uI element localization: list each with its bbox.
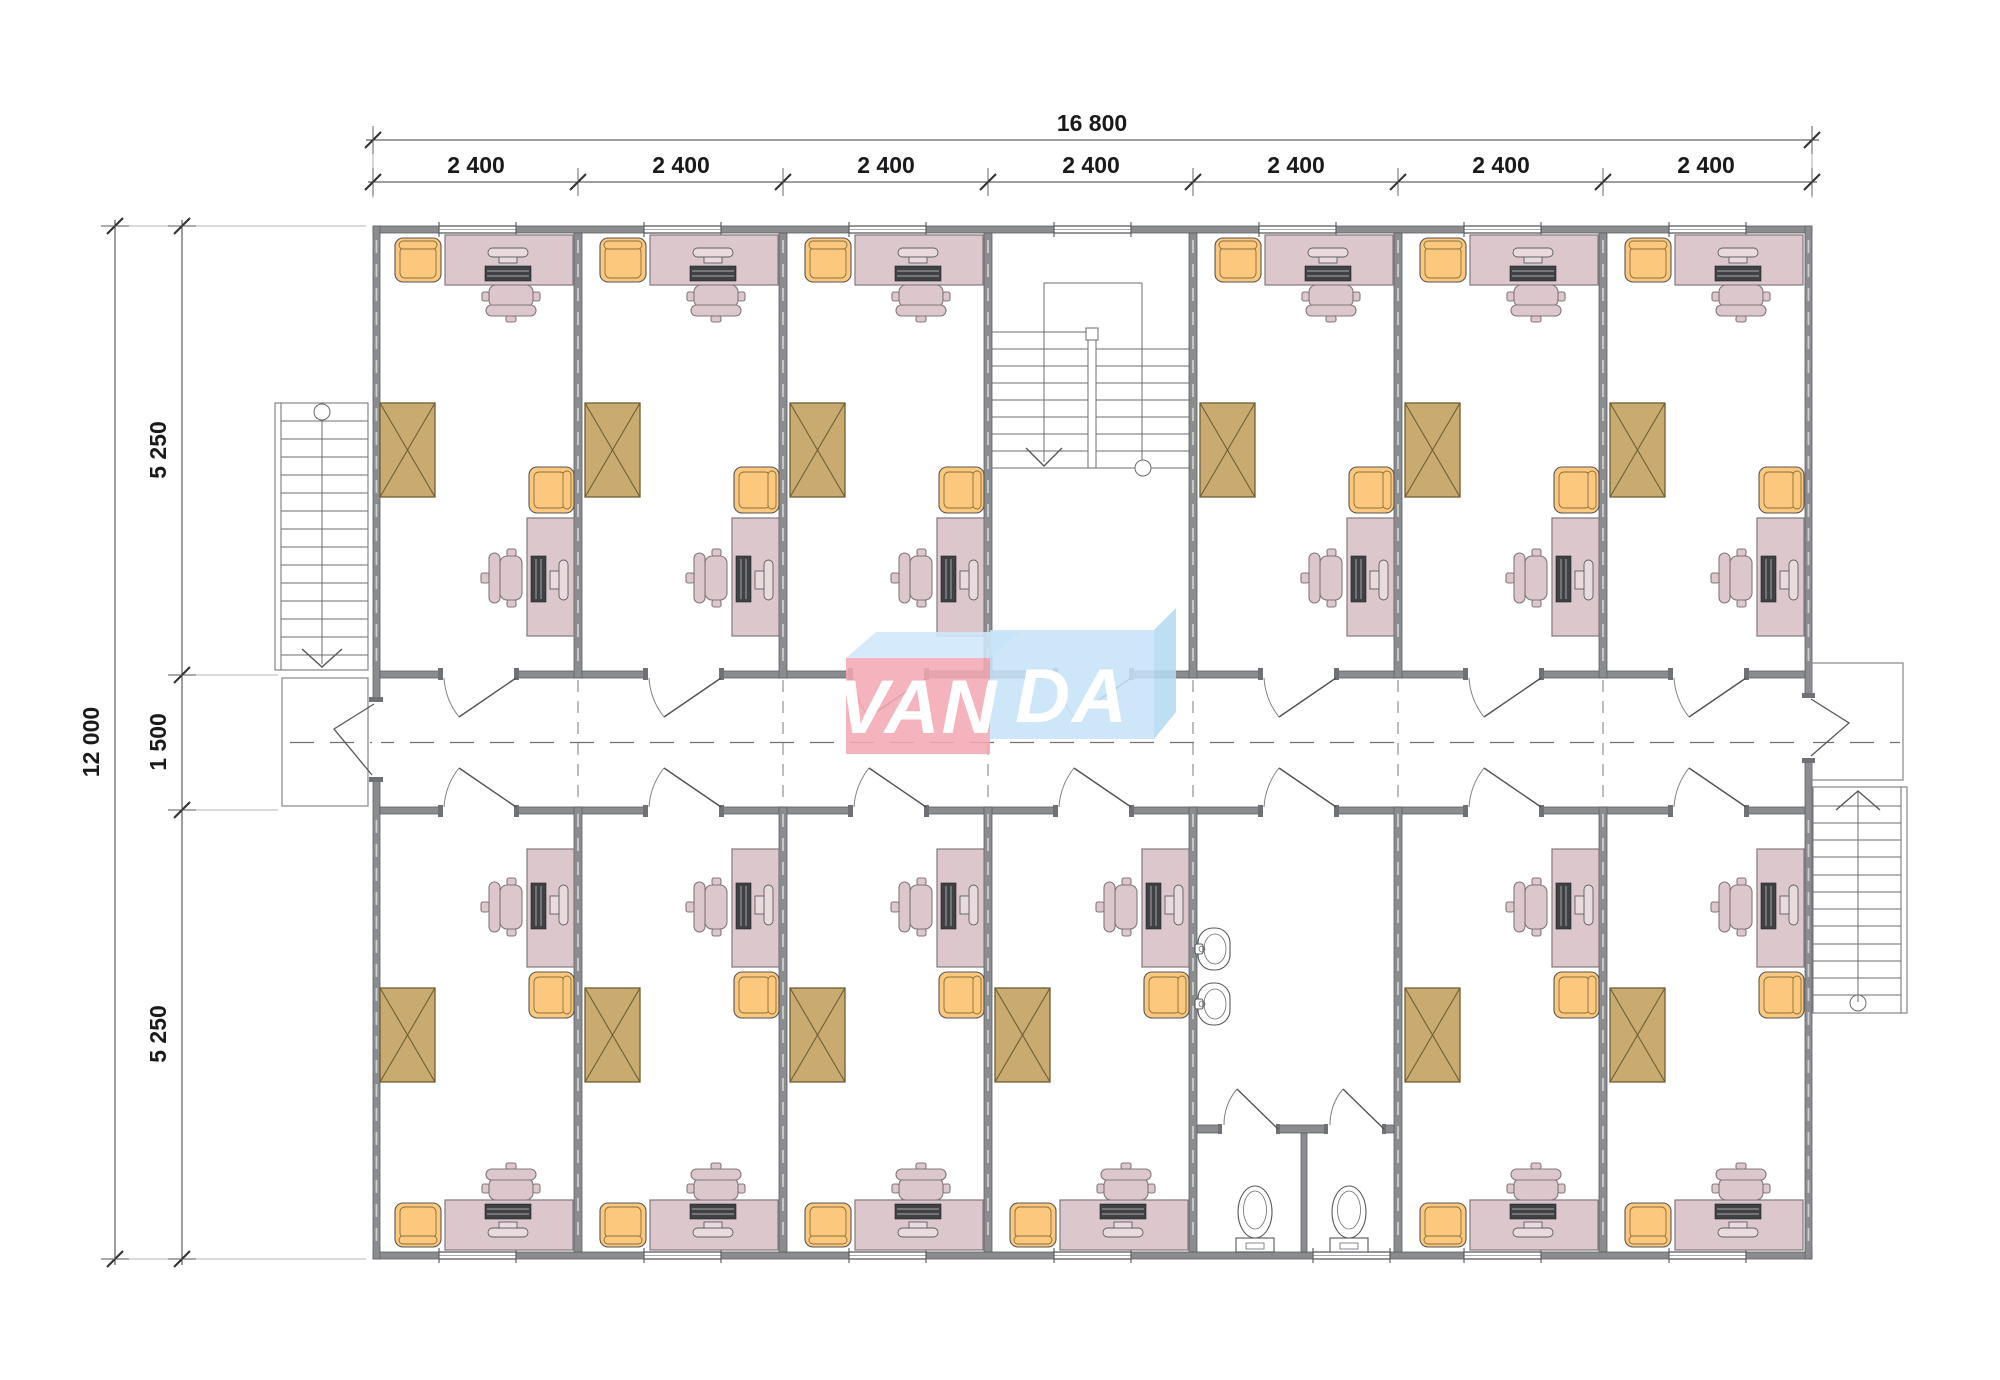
office-room (1405, 235, 1599, 636)
dim-bay-1: 2 400 (447, 152, 505, 178)
central-staircase (992, 283, 1189, 476)
dim-bay-2: 2 400 (652, 152, 710, 178)
floor-plan-page: VAN DA 16 800 2 400 2 400 2 400 2 400 2 … (0, 0, 2000, 1380)
dim-seg-bottom: 5 250 (145, 1005, 171, 1063)
toilet (1330, 1186, 1368, 1252)
right-porch (1812, 663, 1903, 780)
dim-seg-top: 5 250 (145, 421, 171, 479)
dim-bay-5: 2 400 (1267, 152, 1325, 178)
office-room (1200, 235, 1394, 636)
toilet (1236, 1186, 1274, 1252)
right-exterior-stair (1812, 663, 1907, 1013)
office-room (380, 235, 574, 636)
dim-bay-6: 2 400 (1472, 152, 1530, 178)
office-room (790, 849, 984, 1250)
bottom-rooms (380, 849, 1804, 1250)
office-room (585, 849, 779, 1250)
office-room (1610, 849, 1804, 1250)
wash-basin (1195, 928, 1230, 970)
bathroom (1195, 928, 1394, 1252)
dimension-left: 12 000 5 250 1 500 5 250 (78, 218, 366, 1267)
dim-bay-3: 2 400 (857, 152, 915, 178)
dim-bay-7: 2 400 (1677, 152, 1735, 178)
office-room (790, 235, 984, 636)
dim-seg-middle: 1 500 (145, 713, 171, 771)
dimension-top: 16 800 2 400 2 400 2 400 2 400 2 400 2 4… (365, 110, 1820, 198)
dim-bay-4: 2 400 (1062, 152, 1120, 178)
vanda-logo: VAN DA (838, 608, 1176, 754)
office-room (1405, 849, 1599, 1250)
left-exterior-stair (275, 403, 368, 806)
logo-text-left: VAN (838, 665, 999, 750)
corridor-east-exit-door (1802, 693, 1849, 763)
office-room (1610, 235, 1804, 636)
office-room (995, 849, 1189, 1250)
wash-basin (1195, 983, 1230, 1025)
stall-door (1224, 1089, 1278, 1129)
logo-side-face (1154, 608, 1176, 739)
office-room (380, 849, 574, 1250)
dim-total-height: 12 000 (78, 707, 104, 777)
stall-divider-wall (1301, 1133, 1307, 1252)
office-room (585, 235, 779, 636)
corridor-west-exit-door (334, 697, 383, 782)
floor-plan-drawing: VAN DA 16 800 2 400 2 400 2 400 2 400 2 … (0, 0, 2000, 1380)
stall-door (1330, 1089, 1384, 1129)
dim-total-width: 16 800 (1057, 110, 1127, 136)
logo-text-right: DA (1015, 654, 1129, 739)
